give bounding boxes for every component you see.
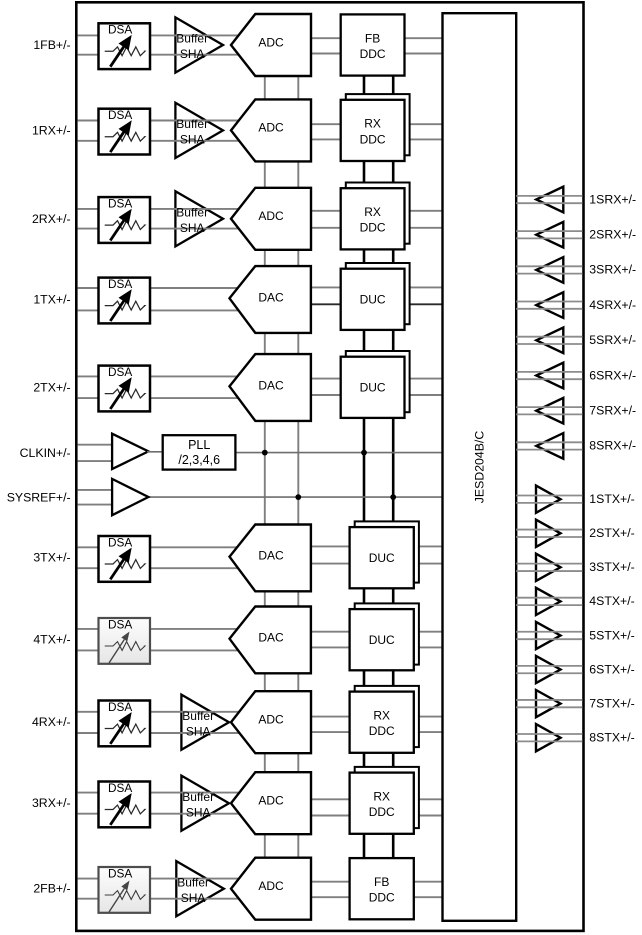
- svg-text:5STX+/-: 5STX+/-: [589, 628, 634, 642]
- svg-text:2RX+/-: 2RX+/-: [32, 212, 71, 226]
- svg-text:Buffer: Buffer: [176, 117, 208, 131]
- svg-text:DUC: DUC: [369, 551, 395, 565]
- svg-text:PLL: PLL: [188, 438, 210, 452]
- svg-text:DSA: DSA: [108, 23, 132, 37]
- svg-text:6SRX+/-: 6SRX+/-: [589, 368, 636, 382]
- svg-text:ADC: ADC: [258, 879, 284, 893]
- svg-text:ADC: ADC: [258, 35, 284, 49]
- svg-text:DSA: DSA: [108, 197, 132, 211]
- svg-text:RX: RX: [373, 709, 390, 723]
- svg-text:4STX+/-: 4STX+/-: [589, 594, 634, 608]
- svg-text:SHA: SHA: [180, 47, 205, 61]
- svg-text:DSA: DSA: [108, 617, 132, 631]
- svg-text:1STX+/-: 1STX+/-: [589, 492, 634, 506]
- svg-text:7SRX+/-: 7SRX+/-: [589, 404, 636, 418]
- svg-text:2SRX+/-: 2SRX+/-: [589, 228, 636, 242]
- svg-text:DDC: DDC: [360, 221, 386, 235]
- svg-text:DSA: DSA: [108, 700, 132, 714]
- svg-text:SHA: SHA: [186, 724, 211, 738]
- svg-text:DUC: DUC: [360, 293, 386, 307]
- svg-text:DSA: DSA: [108, 866, 132, 880]
- svg-text:8STX+/-: 8STX+/-: [589, 730, 634, 744]
- svg-text:Buffer: Buffer: [182, 709, 214, 723]
- svg-text:DAC: DAC: [258, 290, 284, 304]
- svg-text:DSA: DSA: [108, 535, 132, 549]
- svg-text:5SRX+/-: 5SRX+/-: [589, 333, 636, 347]
- svg-text:1RX+/-: 1RX+/-: [32, 123, 71, 137]
- svg-text:ADC: ADC: [258, 121, 284, 135]
- svg-text:/2,3,4,6: /2,3,4,6: [178, 453, 220, 467]
- svg-text:3SRX+/-: 3SRX+/-: [589, 263, 636, 277]
- svg-text:4SRX+/-: 4SRX+/-: [589, 298, 636, 312]
- svg-text:4RX+/-: 4RX+/-: [32, 715, 71, 729]
- svg-text:RX: RX: [373, 790, 390, 804]
- svg-text:Buffer: Buffer: [176, 205, 208, 219]
- svg-text:DDC: DDC: [360, 132, 386, 146]
- svg-text:JESD204B/C: JESD204B/C: [472, 431, 486, 504]
- svg-text:2STX+/-: 2STX+/-: [589, 526, 634, 540]
- svg-text:RX: RX: [364, 205, 381, 219]
- svg-text:SHA: SHA: [181, 891, 206, 905]
- svg-text:2TX+/-: 2TX+/-: [33, 380, 70, 394]
- svg-text:1SRX+/-: 1SRX+/-: [589, 192, 636, 206]
- svg-text:Buffer: Buffer: [182, 790, 214, 804]
- svg-text:SHA: SHA: [186, 805, 211, 819]
- svg-text:7STX+/-: 7STX+/-: [589, 696, 634, 710]
- svg-text:DSA: DSA: [108, 781, 132, 795]
- svg-text:1FB+/-: 1FB+/-: [33, 38, 70, 52]
- svg-text:DUC: DUC: [369, 633, 395, 647]
- svg-text:DDC: DDC: [369, 891, 395, 905]
- svg-text:SHA: SHA: [180, 133, 205, 147]
- svg-text:DAC: DAC: [258, 549, 284, 563]
- svg-text:ADC: ADC: [258, 713, 284, 727]
- svg-text:3TX+/-: 3TX+/-: [33, 551, 70, 565]
- svg-text:6STX+/-: 6STX+/-: [589, 662, 634, 676]
- svg-text:FB: FB: [374, 875, 389, 889]
- svg-text:DSA: DSA: [108, 277, 132, 291]
- svg-text:RX: RX: [364, 117, 381, 131]
- svg-text:DAC: DAC: [258, 378, 284, 392]
- svg-text:SHA: SHA: [180, 221, 205, 235]
- svg-text:3RX+/-: 3RX+/-: [32, 796, 71, 810]
- svg-text:DDC: DDC: [360, 47, 386, 61]
- svg-text:DAC: DAC: [258, 631, 284, 645]
- svg-text:FB: FB: [365, 31, 380, 45]
- svg-text:8SRX+/-: 8SRX+/-: [589, 439, 636, 453]
- svg-text:SYSREF+/-: SYSREF+/-: [7, 490, 71, 504]
- svg-text:Buffer: Buffer: [176, 32, 208, 46]
- svg-text:CLKIN+/-: CLKIN+/-: [20, 446, 71, 460]
- svg-text:DDC: DDC: [369, 805, 395, 819]
- svg-text:2FB+/-: 2FB+/-: [33, 882, 70, 896]
- svg-text:Buffer: Buffer: [177, 875, 209, 889]
- svg-text:ADC: ADC: [258, 794, 284, 808]
- svg-text:DUC: DUC: [360, 381, 386, 395]
- svg-text:3STX+/-: 3STX+/-: [589, 560, 634, 574]
- svg-text:ADC: ADC: [258, 209, 284, 223]
- svg-text:4TX+/-: 4TX+/-: [33, 633, 70, 647]
- svg-text:DSA: DSA: [108, 108, 132, 122]
- svg-text:DDC: DDC: [369, 724, 395, 738]
- svg-text:DSA: DSA: [108, 365, 132, 379]
- svg-text:1TX+/-: 1TX+/-: [33, 292, 70, 306]
